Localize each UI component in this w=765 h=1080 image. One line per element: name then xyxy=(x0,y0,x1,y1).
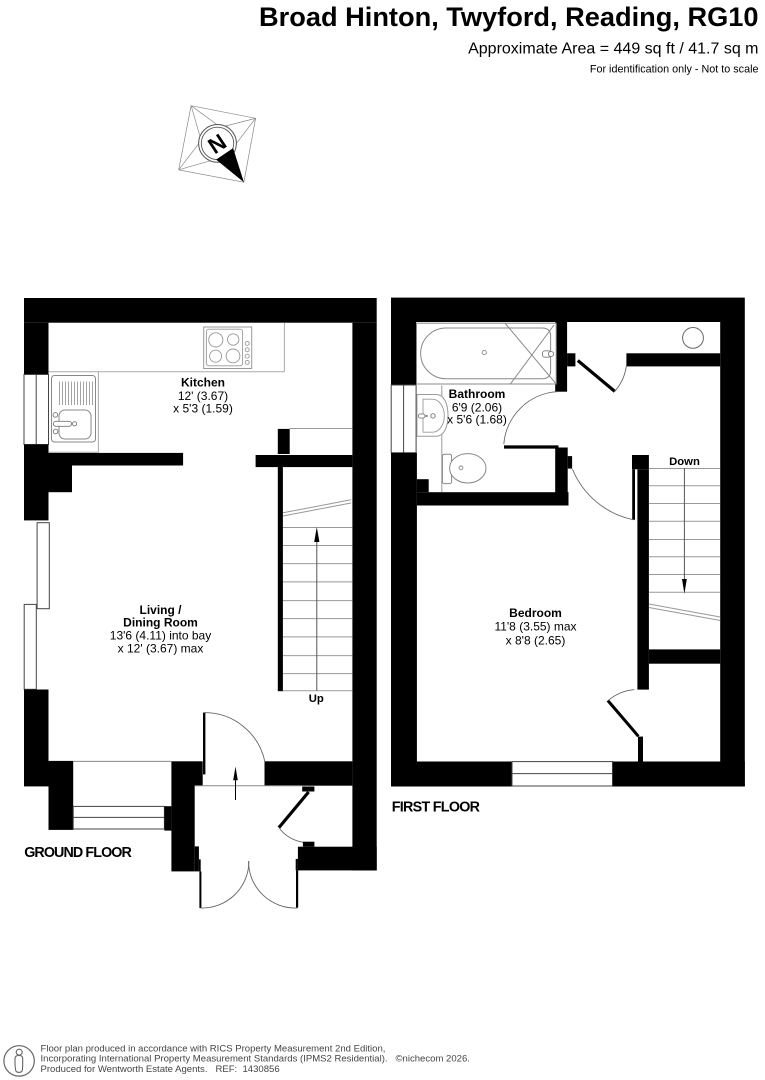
svg-text:For identification only - Not: For identification only - Not to scale xyxy=(590,63,759,75)
svg-text:x 5'6 (1.68): x 5'6 (1.68) xyxy=(447,413,507,427)
svg-text:x 12' (3.67) max: x 12' (3.67) max xyxy=(118,642,204,656)
svg-text:Kitchen: Kitchen xyxy=(181,375,225,389)
svg-text:Produced for Wentworth Estate: Produced for Wentworth Estate Agents. RE… xyxy=(41,1064,280,1075)
svg-text:Broad Hinton, Twyford, Reading: Broad Hinton, Twyford, Reading, RG10 xyxy=(259,1,758,32)
svg-text:Approximate Area = 449 sq ft /: Approximate Area = 449 sq ft / 41.7 sq m xyxy=(468,41,758,58)
svg-text:Incorporating International Pr: Incorporating International Property Mea… xyxy=(41,1054,470,1065)
svg-text:GROUND FLOOR: GROUND FLOOR xyxy=(24,845,132,861)
svg-text:x 8'8 (2.65): x 8'8 (2.65) xyxy=(506,634,566,648)
svg-text:Down: Down xyxy=(669,456,700,468)
svg-text:13'6 (4.11) into bay: 13'6 (4.11) into bay xyxy=(110,628,211,642)
svg-text:Bathroom: Bathroom xyxy=(449,387,506,401)
svg-text:FIRST FLOOR: FIRST FLOOR xyxy=(392,799,481,815)
svg-text:Dining Room: Dining Room xyxy=(123,615,198,629)
svg-text:Floor plan produced in accorda: Floor plan produced in accordance with R… xyxy=(41,1043,386,1054)
svg-text:Bedroom: Bedroom xyxy=(509,606,562,620)
svg-text:11'8 (3.55) max: 11'8 (3.55) max xyxy=(494,620,576,634)
svg-text:Up: Up xyxy=(309,693,324,705)
svg-text:x 5'3 (1.59): x 5'3 (1.59) xyxy=(173,402,233,416)
